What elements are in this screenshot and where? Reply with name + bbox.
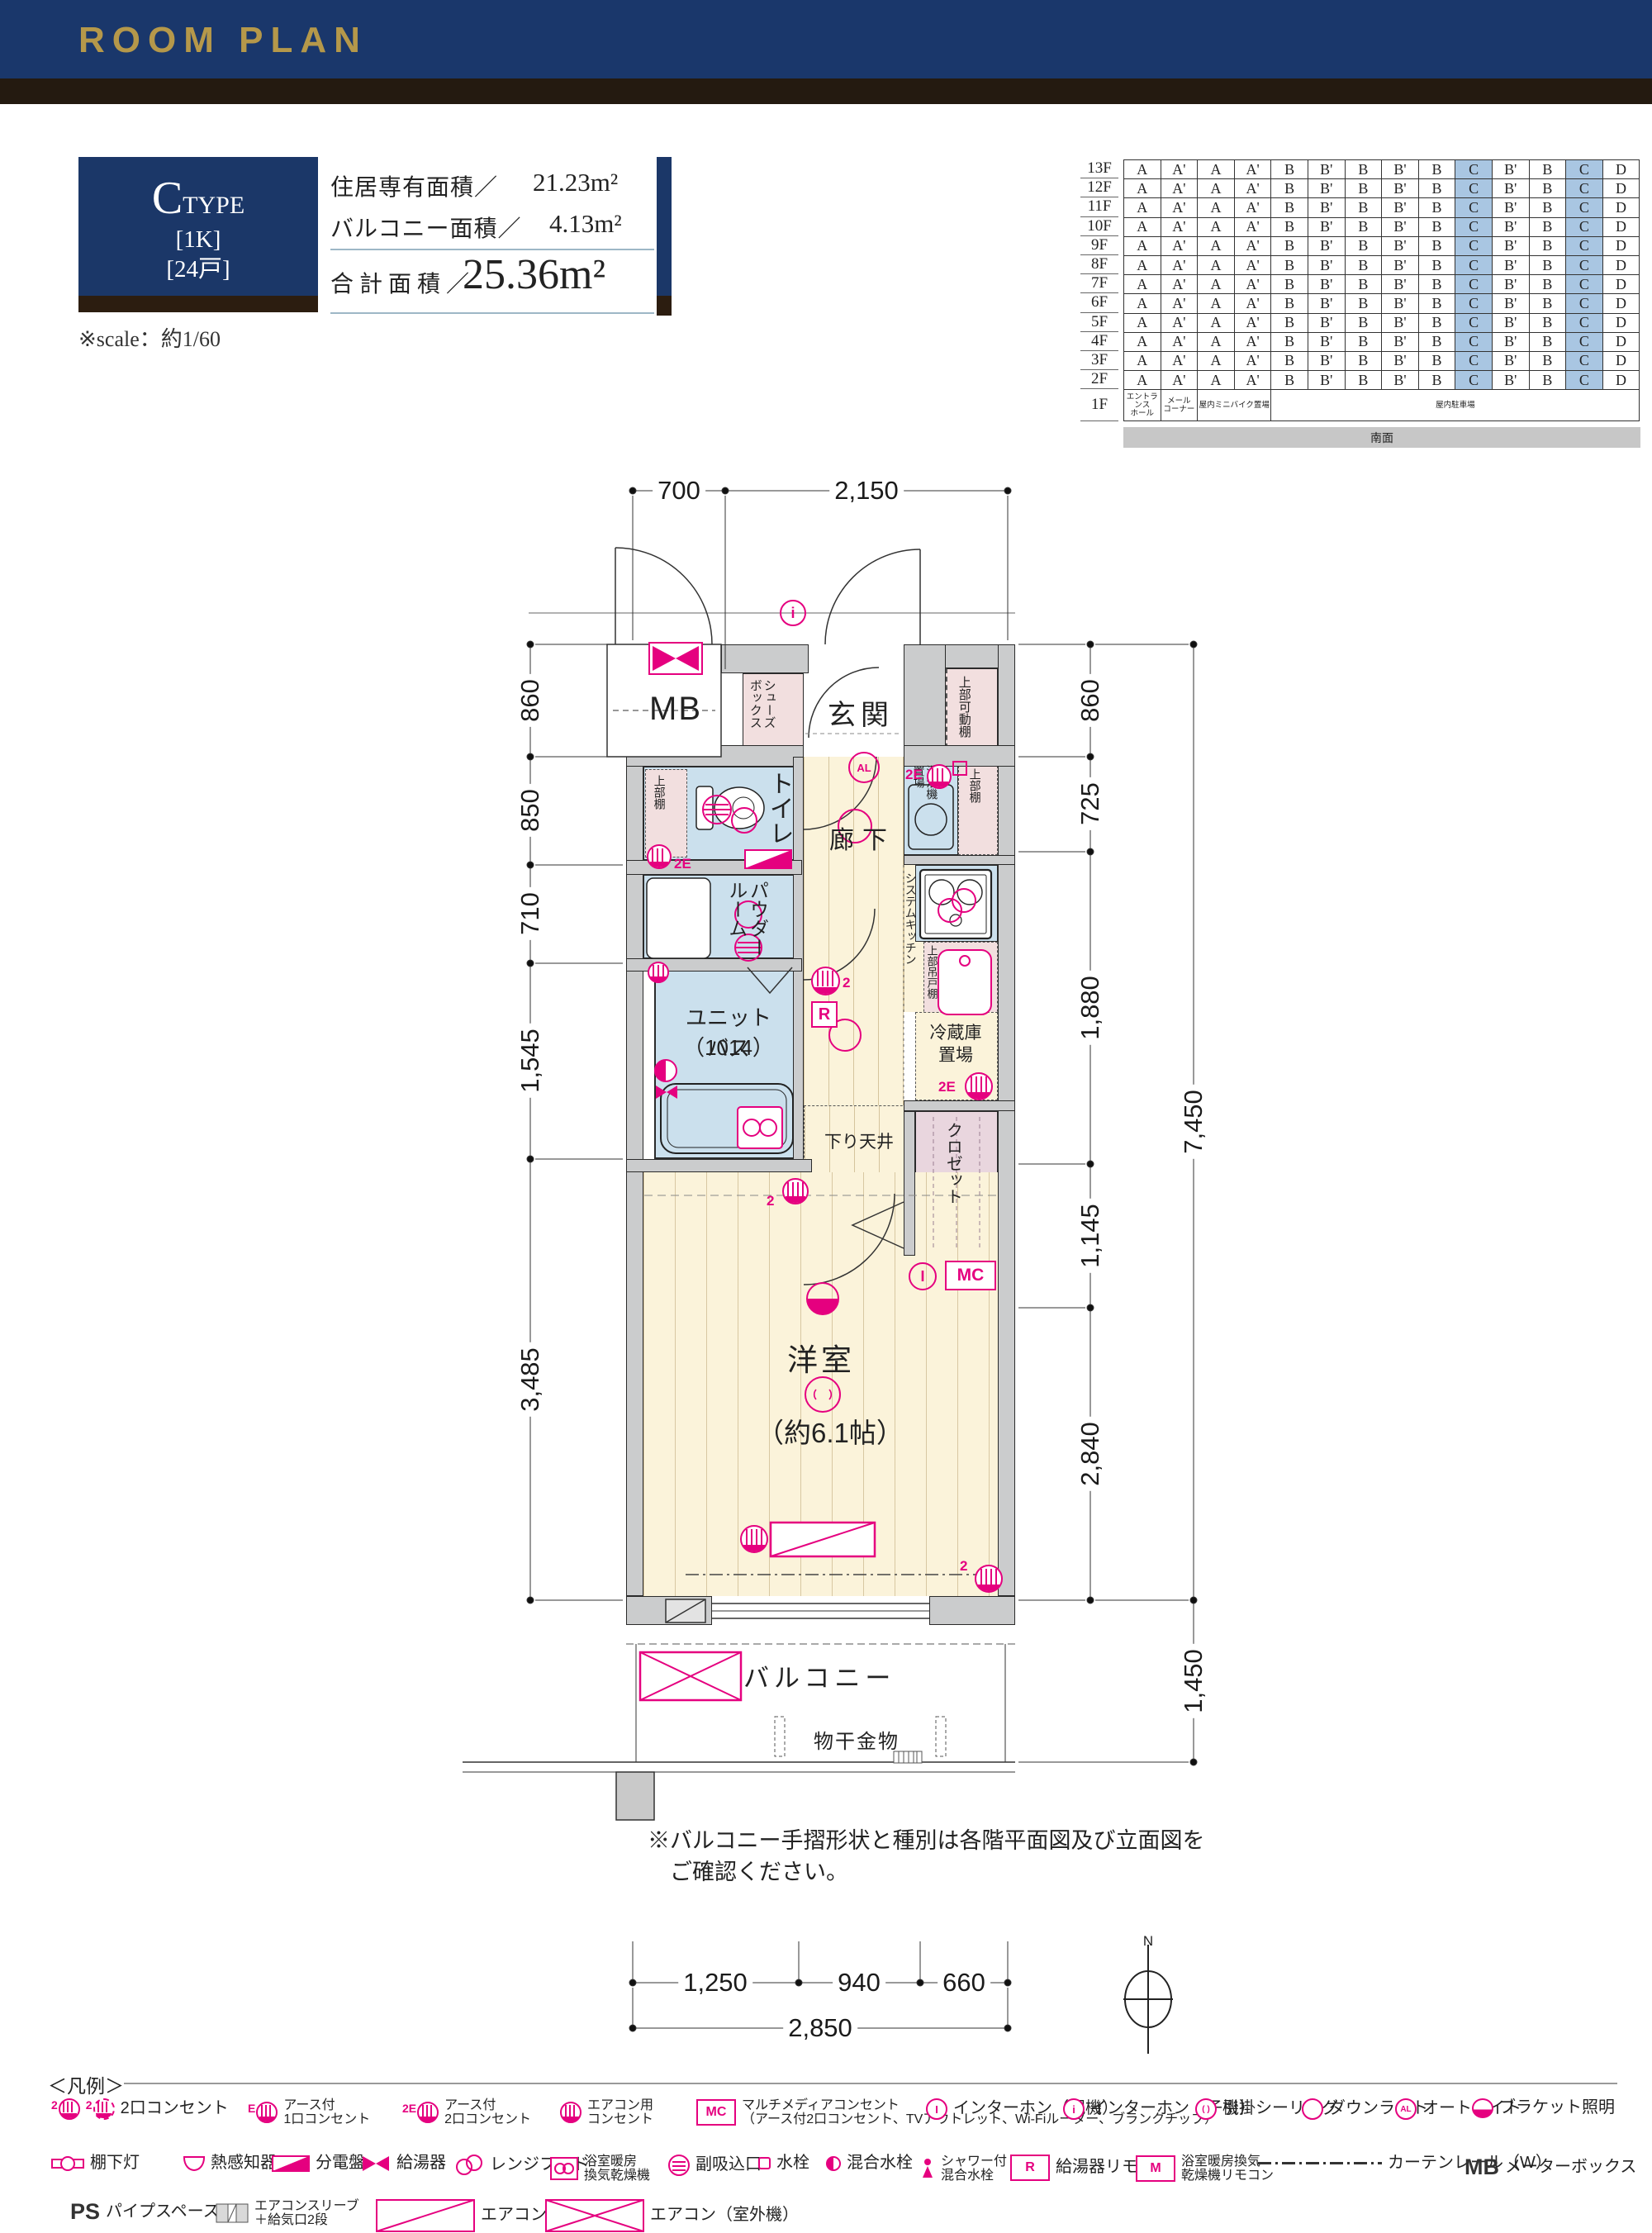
outlet-2-icon <box>975 1565 1003 1593</box>
intercom-child-icon: i <box>780 600 806 626</box>
legend-item-label: ブラケット照明 <box>1499 2099 1615 2117</box>
dim-right-725: 725 <box>1075 777 1105 830</box>
legend-item-label: 2口コンセント <box>121 2100 229 2118</box>
toilet-shelf-label: 上部棚 <box>653 775 666 853</box>
legend-item-out1e: Eアース付 1口コンセント <box>248 2098 370 2127</box>
outlet-2e-sup: 2E <box>674 856 691 872</box>
legend-item-label: 混合水栓 <box>847 2155 913 2173</box>
dim-left-860: 860 <box>515 674 545 727</box>
legend-item-bathdry: 浴室暖房 換気乾燥機 <box>550 2155 650 2183</box>
legend-item-label: 水栓 <box>776 2155 809 2173</box>
legend-item-bunden: 分電盤 <box>272 2155 365 2173</box>
dim-bottom-660: 660 <box>938 1968 990 1998</box>
outlet-2-icon <box>811 967 840 995</box>
compass-north-label: N <box>1143 1933 1153 1950</box>
outlet-2-sup: 2 <box>767 1193 774 1209</box>
western-label: 洋室 <box>787 1335 855 1380</box>
legend-item-label: シャワー付 混合水栓 <box>941 2155 1007 2183</box>
legend-item-out2: 222口コンセント <box>51 2098 229 2120</box>
legend-item-label: 浴室暖房 換気乾燥機 <box>584 2155 650 2183</box>
dim-left-710: 710 <box>515 887 545 940</box>
legend-item-label: 分電盤 <box>316 2155 365 2173</box>
legend-rule <box>124 2083 1617 2084</box>
dim-bottom-total: 2,850 <box>783 2013 857 2043</box>
legend-item-label: エアコンスリーブ ＋給気口2段 <box>254 2199 359 2228</box>
legend-item-mbx: MBメーターボックス <box>1464 2155 1636 2180</box>
outlet-ac-icon <box>740 1525 768 1553</box>
balcony-note-line1: ※バルコニー手摺形状と種別は各階平面図及び立面図を <box>648 1822 1204 1855</box>
fridge-label: 冷蔵庫 置場 <box>919 1022 993 1067</box>
outlet-2e-icon <box>965 1072 993 1100</box>
outlet-2e-sup: 2E <box>938 1079 956 1095</box>
closet-label: クロゼット <box>943 1122 961 1247</box>
outlet-2-sup: 2 <box>843 975 850 991</box>
multimedia-outlet-icon: MC <box>945 1261 996 1290</box>
dim-top-2150: 2,150 <box>829 476 904 506</box>
legend-item-label: 給湯器 <box>396 2155 446 2173</box>
legend-item-kyuto: 給湯器 <box>361 2155 446 2173</box>
balcony-note-line2: ご確認ください。 <box>648 1854 848 1886</box>
laundry-label: 物干金物 <box>814 1725 900 1754</box>
genkan-label: 玄関 <box>828 692 894 733</box>
balcony-label: バルコニー <box>743 1657 895 1694</box>
kitchen-label: システムキッチン <box>904 872 917 1009</box>
dim-right-2840: 2,840 <box>1075 1417 1105 1491</box>
outlet-2-icon <box>782 1178 809 1204</box>
dim-bottom-940: 940 <box>833 1968 885 1998</box>
legend-item-label: エアコン（室外機） <box>650 2207 799 2225</box>
legend-item-faucet: 水栓 <box>758 2155 809 2173</box>
powder-label: パウダー ルーム <box>725 881 768 957</box>
hanging-cupboard-label: 上部吊戸棚 <box>925 945 938 1023</box>
legend-item-bracket: ブラケット照明 <box>1472 2098 1615 2118</box>
compass-icon <box>1123 1945 1173 2054</box>
unit-bath-size: （1014） <box>677 1031 780 1062</box>
outlet-2e-icon <box>647 844 672 869</box>
legend-item-ps: PSパイプスペース <box>70 2199 220 2225</box>
dim-bottom-1250: 1,250 <box>678 1968 752 1998</box>
legend-item-label: アース付 2口コンセント <box>444 2098 531 2127</box>
plan-linework <box>0 0 1652 2233</box>
dim-balcony: 1,450 <box>1179 1644 1208 1718</box>
legend-item-heat: 熱感知器 <box>183 2155 277 2173</box>
outlet-2e-sup: 2E <box>905 767 923 783</box>
outlet-e-icon <box>648 962 669 983</box>
legend-item-sleeve: エアコンスリーブ ＋給気口2段 <box>216 2199 359 2228</box>
toilet-label: トイレ <box>765 771 793 862</box>
legend-item-shower: シャワー付 混合水栓 <box>920 2155 1007 2183</box>
dim-right-total: 7,450 <box>1179 1085 1208 1159</box>
movable-shelf-label: 上部可動棚 <box>957 676 971 755</box>
water-heater-remote-icon: R <box>811 1001 838 1028</box>
legend-item-shelf_light: 棚下灯 <box>51 2155 140 2173</box>
dim-right-1880: 1,880 <box>1075 971 1105 1045</box>
legend-title: ＜凡例＞ <box>48 2070 124 2098</box>
legend-item-out2e: 2Eアース付 2口コンセント <box>402 2098 531 2127</box>
washer-shelf-label: 上部棚 <box>968 768 981 851</box>
dim-left-3485: 3,485 <box>515 1342 545 1417</box>
dim-right-1145: 1,145 <box>1075 1199 1105 1273</box>
legend-item-outac: エアコン用 コンセント <box>560 2098 653 2127</box>
down-ceiling-label: 下り天井 <box>824 1128 894 1153</box>
legend-item-label: 棚下灯 <box>90 2155 140 2173</box>
autolight-icon: AL <box>848 752 880 783</box>
legend-item-label: 副吸込口 <box>695 2156 762 2174</box>
western-size-label: （約6.1帖） <box>757 1411 904 1451</box>
dim-left-1545: 1,545 <box>515 1024 545 1098</box>
legend-item-intake: 副吸込口 <box>668 2155 762 2176</box>
shoebox-label: シューズ ボックス <box>748 679 776 755</box>
outlet-2-sup: 2 <box>960 1558 967 1575</box>
mb-label: MB <box>649 691 702 728</box>
legend-item-label: エアコン用 コンセント <box>587 2098 653 2127</box>
dim-left-850: 850 <box>515 784 545 837</box>
legend-item-label: アース付 1口コンセント <box>283 2098 370 2127</box>
legend-item-ac_out: エアコン（室外機） <box>545 2199 799 2232</box>
legend-item-m_remote: M浴室暖房換気 乾燥機リモコン <box>1136 2155 1274 2183</box>
hallway-label: 廊下 <box>829 820 895 856</box>
legend-item-label: 熱感知器 <box>211 2155 277 2173</box>
dim-top-700: 700 <box>653 476 705 506</box>
room-plan-page: { "header": { "title": "ROOM PLAN" }, "t… <box>0 0 1652 2233</box>
dim-right-860: 860 <box>1075 674 1105 727</box>
legend-item-label: パイプスペース <box>106 2203 220 2221</box>
outlet-2e-icon <box>927 764 952 789</box>
legend-item-label: メーターボックス <box>1505 2159 1636 2177</box>
intercom-parent-icon: I <box>909 1262 937 1290</box>
legend-item-mix: 混合水栓 <box>826 2155 913 2173</box>
